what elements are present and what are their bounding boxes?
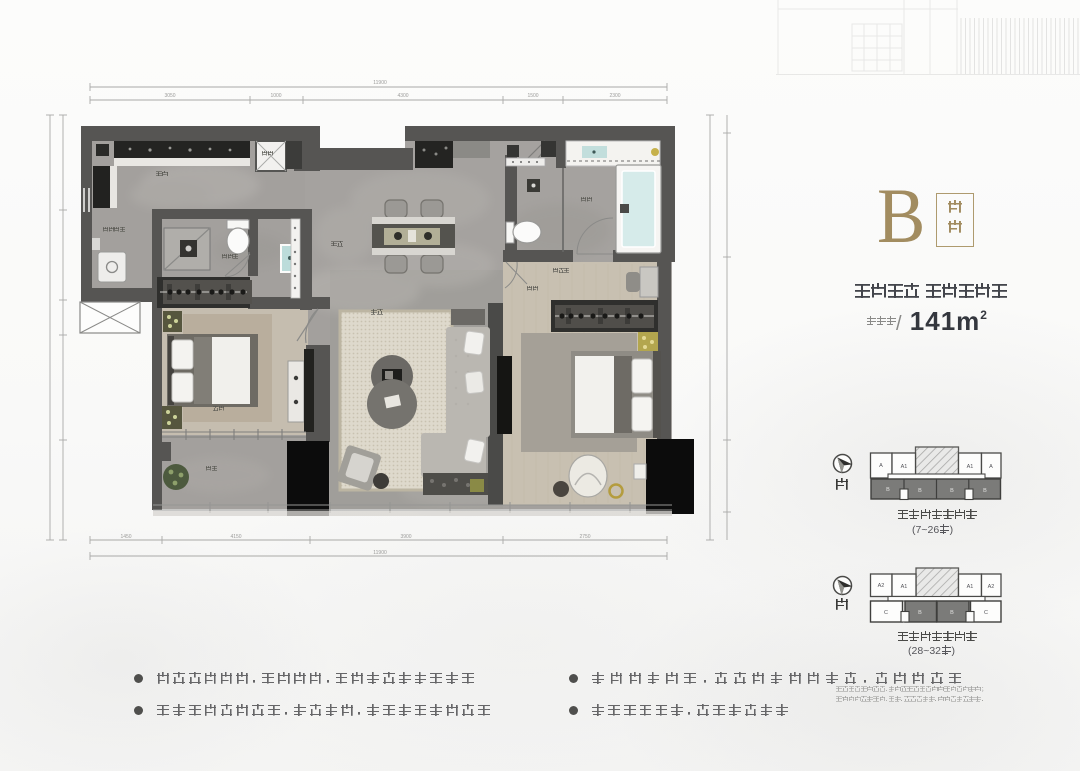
svg-text:A: A	[989, 464, 993, 470]
svg-text:A: A	[879, 463, 883, 469]
svg-text:1450: 1450	[120, 534, 131, 540]
svg-text:4300: 4300	[397, 93, 408, 99]
svg-text:2750: 2750	[579, 534, 590, 540]
svg-text:2300: 2300	[609, 93, 620, 99]
svg-text:B: B	[918, 488, 922, 494]
svg-text:B: B	[886, 487, 890, 493]
svg-text:A1: A1	[901, 584, 908, 590]
svg-text:A2: A2	[988, 584, 995, 590]
svg-text:11900: 11900	[373, 550, 387, 556]
svg-text:3050: 3050	[164, 93, 175, 99]
svg-text:C: C	[884, 610, 888, 616]
svg-text:3900: 3900	[400, 534, 411, 540]
svg-text:B: B	[950, 610, 954, 616]
svg-text:C: C	[984, 610, 988, 616]
svg-text:1000: 1000	[270, 93, 281, 99]
svg-text:A1: A1	[967, 584, 974, 590]
svg-text:B: B	[983, 488, 987, 494]
svg-text:B: B	[918, 610, 922, 616]
svg-text:11900: 11900	[373, 80, 387, 86]
svg-text:B: B	[950, 488, 954, 494]
svg-text:4150: 4150	[230, 534, 241, 540]
svg-text:1500: 1500	[527, 93, 538, 99]
svg-text:A1: A1	[967, 464, 974, 470]
svg-text:A2: A2	[878, 583, 885, 589]
svg-text:A1: A1	[901, 464, 908, 470]
